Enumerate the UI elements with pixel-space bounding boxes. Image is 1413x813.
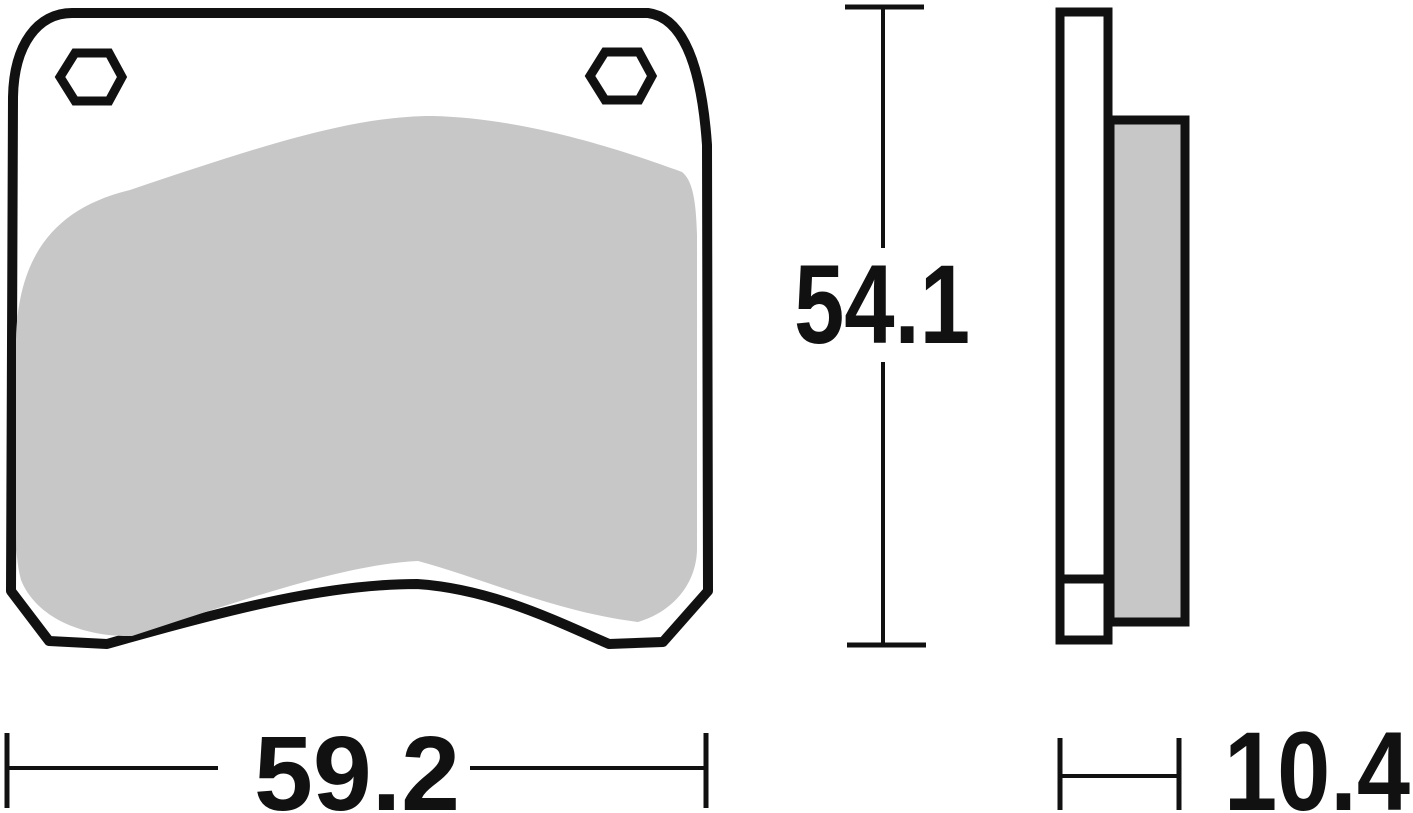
friction-material-front (16, 116, 697, 636)
height-dimension-label: 54.1 (794, 242, 970, 367)
side-view (1057, 12, 1185, 640)
thickness-dimension: 10.4 (1060, 709, 1410, 813)
friction-material-side (1110, 120, 1185, 622)
height-dimension: 54.1 (794, 7, 970, 645)
brake-pad-technical-drawing: 54.1 59.2 10.4 (0, 0, 1413, 813)
front-view (11, 13, 708, 644)
mounting-hole-left (60, 53, 122, 101)
thickness-dimension-label: 10.4 (1224, 709, 1410, 813)
mounting-hole-right (590, 52, 652, 100)
backplate-side (1060, 12, 1108, 640)
drawing-svg: 54.1 59.2 10.4 (0, 0, 1413, 813)
width-dimension: 59.2 (7, 715, 706, 813)
width-dimension-label: 59.2 (254, 715, 460, 813)
